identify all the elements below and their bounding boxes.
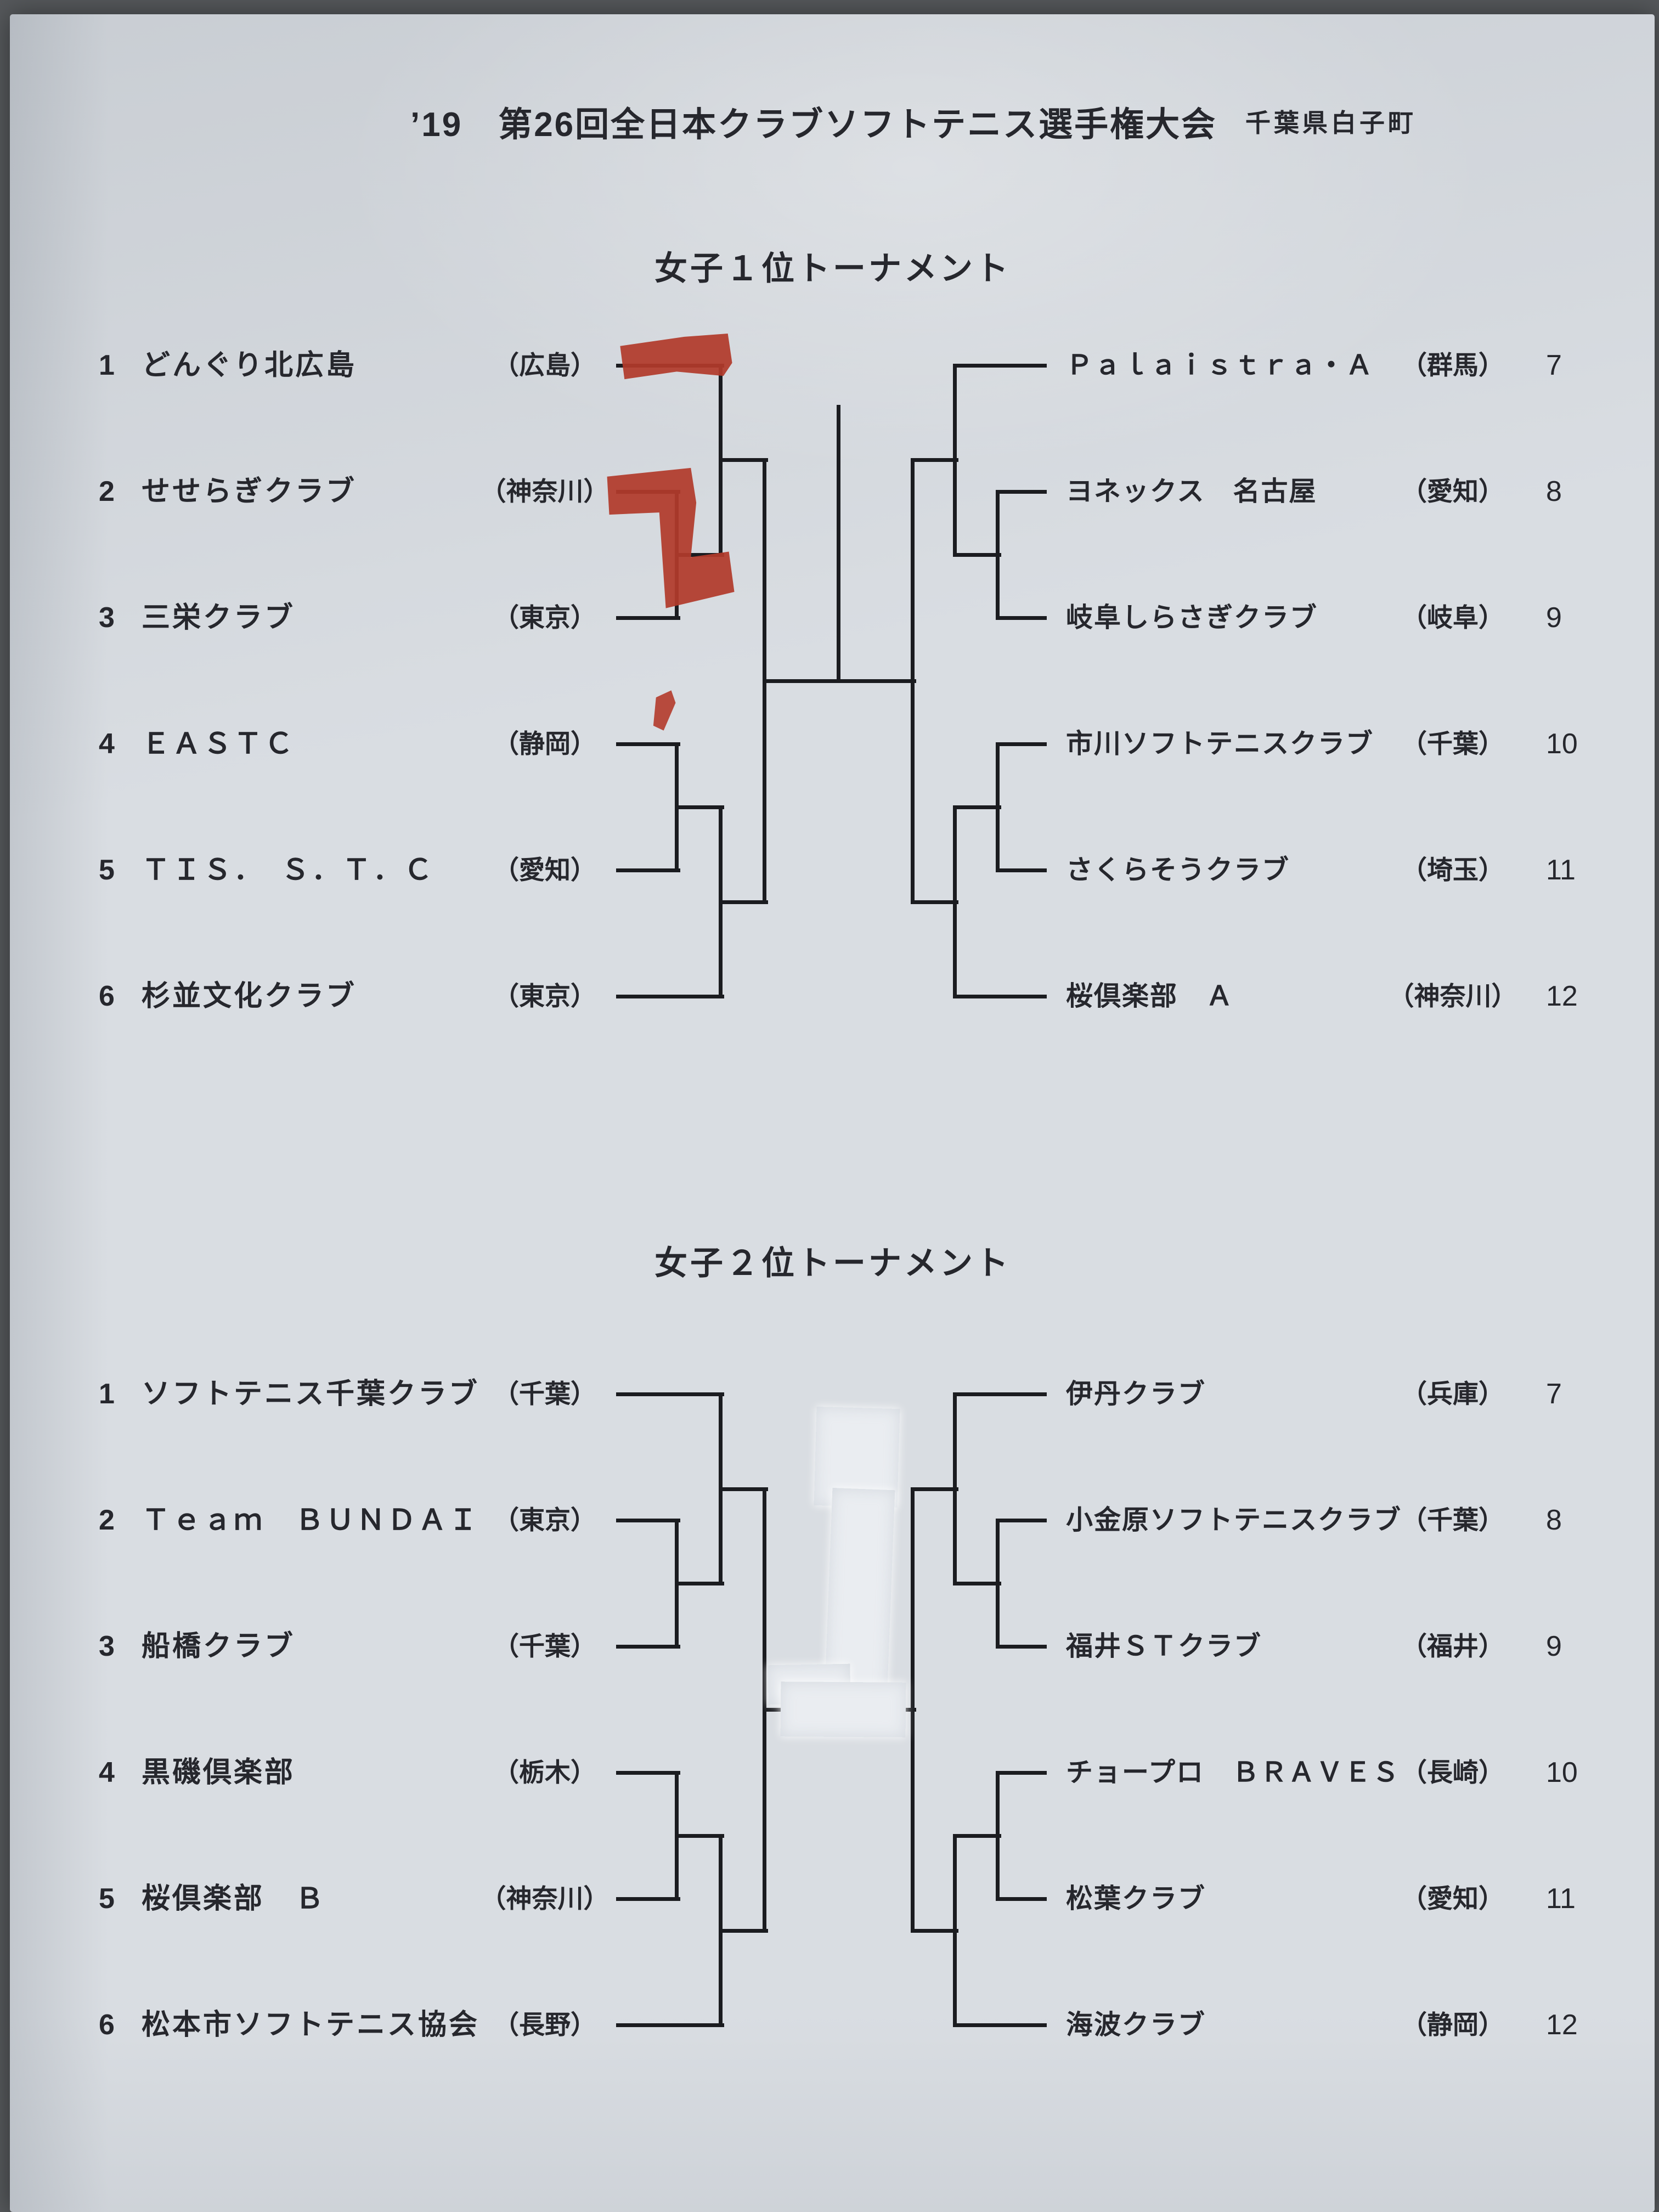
team-name: 桜倶楽部 Ａ [1066,974,1234,1018]
prefecture: （岐阜） [1370,596,1535,640]
prefecture: （神奈川） [1370,974,1535,1018]
bracket-line [955,553,1001,557]
seed: 12 [1546,974,1578,1018]
bracket-line [616,868,680,872]
t1-right-entry-10: 市川ソフトテニスクラブ （千葉） 10 [10,722,1655,766]
bracket-line [616,1771,680,1775]
bracket-line [997,1645,1047,1649]
bracket-line [616,1392,724,1396]
bracket-line [997,868,1047,872]
t1-right-entry-9: 岐阜しらさぎクラブ （岐阜） 9 [10,596,1655,640]
bracket-line [997,742,1047,746]
t2-right-entry-10: チョープロ ＢＲＡＶＥＳ （長崎） 10 [10,1751,1655,1795]
bracket-line [997,490,1047,494]
prefecture: （静岡） [1370,2003,1535,2047]
bracket-line [912,900,958,904]
t2-right-entry-11: 松葉クラブ （愛知） 11 [10,1877,1655,1921]
bracket-line [955,2023,1047,2027]
bracket-line [616,995,724,998]
team-name: さくらそうクラブ [1066,848,1290,892]
bracket-line [911,1487,915,1933]
bracket-line [912,1929,958,1933]
bracket-line [911,458,915,904]
t1-right-entry-7: Ｐａｌａｉｓｔｒａ・Ａ （群馬） 7 [10,343,1655,387]
bracket-line [955,1392,1047,1396]
prefecture: （福井） [1370,1624,1535,1668]
team-name: 海波クラブ [1066,2003,1206,2047]
bracket-line [676,805,724,809]
event-location: 千葉県白子町 [1245,103,1417,139]
bracket-line [720,1487,768,1491]
prefecture: （愛知） [1370,470,1535,513]
bracket-line [616,1519,680,1522]
bracket-line [912,458,958,462]
prefecture: （長崎） [1370,1751,1535,1795]
tournament2-title: 女子２位トーナメント [624,1237,1041,1284]
seed: 10 [1546,722,1578,766]
bracket-line [912,1487,958,1491]
bracket-line [955,1834,1001,1838]
team-name: 小金原ソフトテニスクラブ [1066,1498,1402,1542]
bracket-line [720,458,768,462]
bracket-line [997,1771,1047,1775]
t1-right-entry-8: ヨネックス 名古屋 （愛知） 8 [10,470,1655,513]
prefecture: （千葉） [1370,1498,1535,1542]
prefecture: （愛知） [1370,1877,1535,1921]
bracket-line [720,900,768,904]
seed: 8 [1546,470,1562,513]
bracket-line [616,1897,680,1901]
team-name: 松葉クラブ [1066,1877,1206,1921]
team-name: 伊丹クラブ [1066,1372,1206,1416]
bracket-line [955,364,1047,368]
seed: 12 [1546,2003,1578,2047]
correction-tape-piece [781,1681,906,1737]
prefecture: （千葉） [1370,722,1535,766]
bracket-line [676,1834,724,1838]
team-name: チョープロ ＢＲＡＶＥＳ [1066,1751,1400,1795]
seed: 7 [1546,343,1562,387]
bracket-line [997,1897,1047,1901]
seed: 8 [1546,1498,1562,1542]
prefecture: （兵庫） [1370,1372,1535,1416]
team-name: 岐阜しらさぎクラブ [1066,596,1318,640]
tournament1-title: 女子１位トーナメント [624,242,1041,290]
team-name: ヨネックス 名古屋 [1066,470,1317,513]
seed: 11 [1546,848,1576,892]
bracket-line [955,1582,1001,1585]
bracket-line [616,1645,680,1649]
bracket-line [616,2023,724,2027]
prefecture: （埼玉） [1370,848,1535,892]
paper-sheet: ’19 第26回全日本クラブソフトテニス選手権大会 千葉県白子町 女子１位トーナ… [10,14,1655,2212]
team-name: 福井ＳＴクラブ [1066,1624,1262,1668]
bracket-line [616,616,680,620]
seed: 9 [1546,1624,1562,1668]
bracket-line [676,553,724,557]
bracket-line [997,1519,1047,1522]
bracket-line [676,1582,724,1585]
t2-right-entry-12: 海波クラブ （静岡） 12 [10,2003,1655,2047]
event-title: ’19 第26回全日本クラブソフトテニス選手権大会 [410,97,1217,146]
champion-line [837,405,840,683]
seed: 11 [1546,1877,1576,1921]
bracket-line [720,1929,768,1933]
seed: 10 [1546,1751,1578,1795]
t1-right-entry-11: さくらそうクラブ （埼玉） 11 [10,848,1655,892]
bracket-line [997,616,1047,620]
seed: 7 [1546,1372,1562,1416]
t1-right-entry-12: 桜倶楽部 Ａ （神奈川） 12 [10,974,1655,1018]
bracket-line [955,995,1047,998]
bracket-line [955,805,1001,809]
team-name: 市川ソフトテニスクラブ [1066,722,1374,766]
bracket-line [616,742,680,746]
bracket-line [616,490,680,494]
seed: 9 [1546,596,1562,640]
team-name: Ｐａｌａｉｓｔｒａ・Ａ [1066,343,1374,387]
bracket-line [616,364,724,368]
prefecture: （群馬） [1370,343,1535,387]
